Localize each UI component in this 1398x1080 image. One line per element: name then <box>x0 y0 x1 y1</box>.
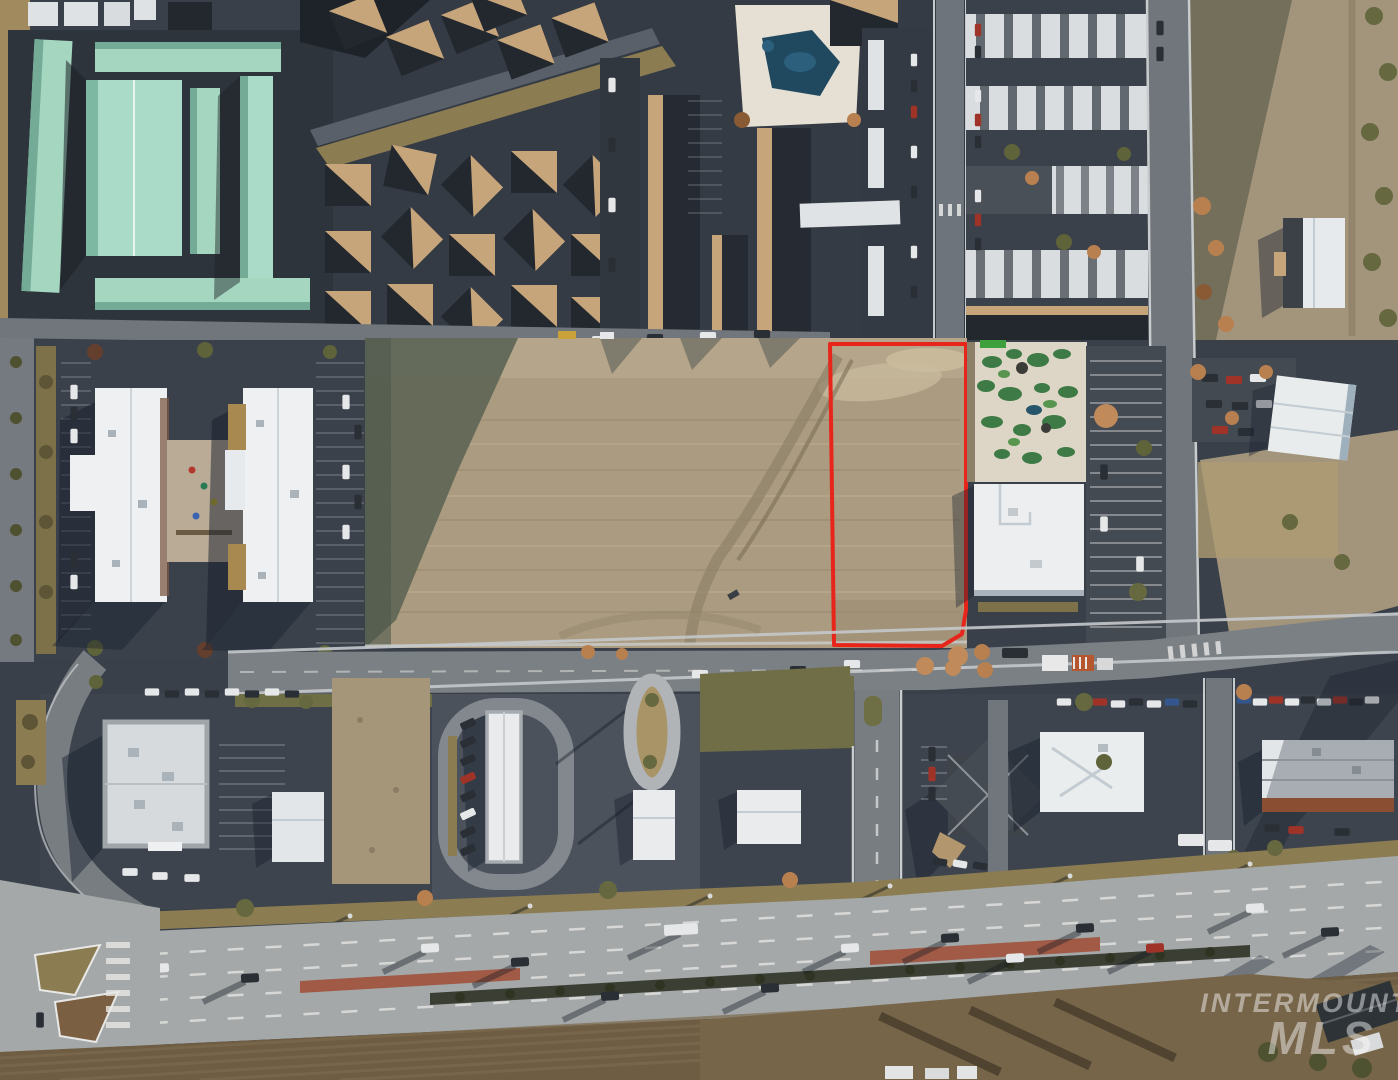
mini-golf-course <box>967 340 1087 482</box>
parking-lane-residential <box>600 58 640 338</box>
aerial-photo: INTERMOUNTAIN MLS <box>0 0 1398 1080</box>
hotel-building-east <box>202 388 313 652</box>
drive-thru-loop <box>630 680 674 784</box>
watermark-line2: MLS <box>1267 1012 1376 1064</box>
parking-east-of-minigolf <box>1086 346 1166 644</box>
vacant-pad-dirt <box>332 678 430 884</box>
aerial-photo-canvas: INTERMOUNTAIN MLS <box>0 0 1398 1080</box>
dirt-lot <box>365 331 970 648</box>
storage-facility <box>0 0 333 330</box>
road-north-vertical <box>934 0 966 342</box>
pad-building-small-west <box>252 792 324 868</box>
hotel-campus <box>34 340 370 660</box>
road-west-vertical <box>0 330 34 662</box>
houses-grid <box>325 145 625 349</box>
residential-neighborhood <box>300 0 965 349</box>
pad-building-center <box>614 790 675 866</box>
townhomes-northeast <box>966 0 1150 340</box>
retail-building-east-of-parcel <box>952 484 1084 612</box>
pad-building-center2 <box>718 790 801 850</box>
hotel-building-west <box>52 388 169 650</box>
parked-cars-ne <box>975 24 981 251</box>
